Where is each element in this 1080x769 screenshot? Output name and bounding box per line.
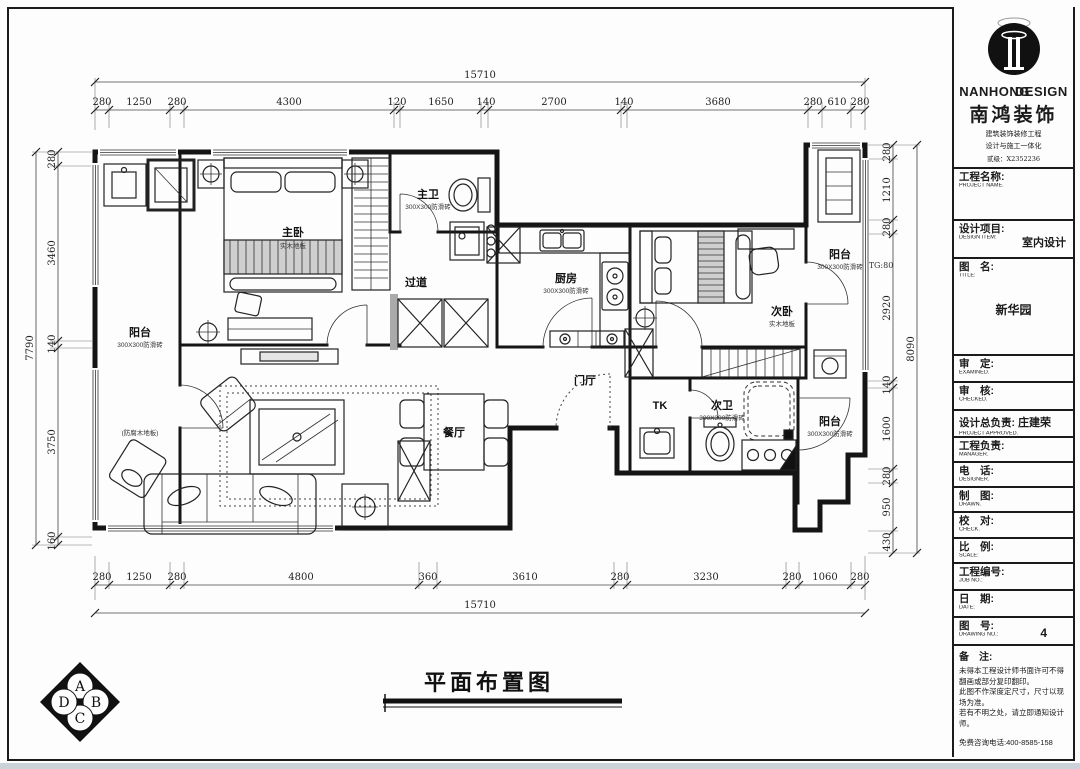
floor-plan: 15710 280 1250 280 4300 120 1650 140 270… [0, 0, 948, 769]
bed-master [224, 158, 342, 292]
field-value: 新华园 [959, 301, 1068, 318]
dim-label: 1250 [126, 97, 151, 108]
lamp-symbols [196, 163, 657, 520]
dim-label: 2920 [882, 295, 893, 320]
tg-annotation: TG:80 [869, 261, 894, 270]
compass-letter-a: A [74, 679, 86, 695]
room-label: 门厅 [574, 373, 596, 387]
room-spec: 300X300防滑砖 [543, 286, 589, 295]
field-drawing-title: 图 名: TITLE: 新华园 [954, 259, 1073, 356]
field-sublabel: DRAWN. [959, 502, 1059, 508]
remarks-line: 若有不明之处，请立即通知设计 [959, 708, 1068, 719]
armchair [198, 375, 257, 434]
field-sublabel: MANAGER. [959, 452, 1059, 458]
dim-label: 280 [167, 572, 186, 583]
dim-label: 2700 [541, 97, 566, 108]
balcony-washer [148, 160, 194, 210]
lounge-chair [108, 438, 168, 499]
brand-logo [984, 15, 1044, 79]
field-sublabel: DESIGNER. [959, 477, 1059, 483]
field-date: 日 期: DATE: [954, 591, 1073, 618]
remarks-line: 场为准。 [959, 698, 1068, 709]
dim-label: 1600 [882, 416, 893, 441]
dim-total-bottom: 15710 [464, 600, 496, 611]
field-sublabel: CHECK. [959, 527, 1059, 533]
compass: A B C D [40, 662, 120, 742]
dim-label: 140 [614, 97, 633, 108]
bathtub [744, 382, 794, 440]
field-label: 图 号: [959, 620, 1068, 632]
room-spec: 300X300防滑砖 [117, 340, 163, 349]
dim-label: 280 [782, 572, 801, 583]
dim-label: 280 [850, 97, 869, 108]
field-label: 比 例: [959, 541, 1068, 553]
wardrobe [352, 158, 390, 290]
remarks-line: 此图不作深度定尺寸，尺寸以现 [959, 687, 1068, 698]
field-chief-designer: 设计总负责:庄建荣 PROJECT APPROVED. [954, 411, 1073, 438]
room-label: 厨房 [555, 271, 577, 285]
dim-total-left: 7790 [25, 335, 36, 360]
brand-subline: 设计与施工一体化 [959, 141, 1068, 151]
stairs [702, 349, 800, 377]
bed-second [640, 231, 752, 303]
remarks-line: 师。 [959, 719, 1068, 730]
field-sublabel: JOB NO.: [959, 578, 1059, 584]
remarks-line: 翻画或部分复印翻印。 [959, 677, 1068, 688]
room-label: 阳台 [819, 414, 841, 428]
room-label: 次卫 [711, 398, 733, 412]
field-sublabel: DATE: [959, 605, 1059, 611]
room-spec: 实木地板 [769, 319, 796, 328]
field-sublabel: PROJECT NAME. [959, 183, 1059, 189]
field-project-name: 工程名称: PROJECT NAME. [954, 169, 1073, 221]
field-proofread: 校 对: CHECK. [954, 513, 1073, 539]
dim-label: 280 [92, 572, 111, 583]
dim-label: 3230 [693, 572, 718, 583]
stove [602, 262, 628, 310]
dim-label: 280 [803, 97, 822, 108]
room-label: TK [653, 400, 668, 412]
dim-total-right: 8090 [906, 336, 917, 361]
room-label: 阳台 [129, 325, 151, 339]
dim-label: 950 [882, 497, 893, 516]
title-block: NANHONGDESIGN 南鸿装饰 建筑装饰装修工程 设计与施工一体化 贰级：… [952, 7, 1073, 757]
dim-label: 3680 [705, 97, 730, 108]
field-label: 日 期: [959, 593, 1068, 605]
field-label: 审 核: [959, 385, 1068, 397]
field-label: 设计总负责: [959, 417, 1015, 429]
dim-label: 280 [882, 217, 893, 236]
field-label: 工程名称: [959, 171, 1068, 183]
field-value: 4 [1040, 626, 1047, 640]
compass-letter-c: C [75, 711, 86, 727]
dim-label: 140 [882, 375, 893, 394]
dim-label: 3610 [512, 572, 537, 583]
field-label: 图 名: [959, 261, 1068, 273]
dim-label: 280 [92, 97, 111, 108]
field-sublabel: PROJECT APPROVED. [959, 431, 1059, 437]
brand-license: 贰级：X2352236 [959, 153, 1068, 163]
field-checked: 审 核: CHECKED. [954, 383, 1073, 411]
field-phone: 电 话: DESIGNER. [954, 463, 1073, 488]
room-spec: 300X300防滑砖 [405, 202, 451, 211]
dim-label: 360 [418, 572, 437, 583]
room-label: 次卧 [771, 304, 793, 318]
field-drawn: 制 图: DRAWN. [954, 488, 1073, 513]
field-label: 审 定: [959, 358, 1068, 370]
dim-label: 140 [476, 97, 495, 108]
dim-label: 140 [47, 334, 58, 353]
page-edge-shadow [0, 763, 1080, 769]
remarks-section: 备 注: 未得本工程设计师书面许可不得 翻画或部分复印翻印。 此图不作深度定尺寸… [954, 646, 1073, 762]
utility-sink [640, 428, 674, 458]
brand-name-en: NANHONGDESIGN [959, 84, 1068, 99]
dim-label: 1060 [812, 572, 837, 583]
field-label: 校 对: [959, 515, 1068, 527]
toilet-master [449, 178, 490, 212]
room-spec: 300X300防滑砖 [817, 262, 863, 271]
compass-letter-d: D [58, 695, 69, 711]
brand-subline: 建筑装饰装修工程 [959, 129, 1068, 139]
room-spec: 实木地板 [280, 241, 307, 250]
dim-label: 1210 [882, 177, 893, 202]
dim-label: 120 [387, 97, 406, 108]
coffee-table [250, 400, 344, 474]
toilet-second [704, 418, 736, 461]
room-spec: 300X300防滑砖 [699, 413, 745, 422]
field-label: 电 话: [959, 465, 1068, 477]
dim-label: 3460 [47, 240, 58, 265]
room-label: 主卧 [282, 225, 304, 239]
field-label: 工程负责: [959, 440, 1068, 452]
shoe-cabinet [550, 331, 624, 347]
remarks-hotline: 免费咨询电话:400-8585-158 [959, 737, 1068, 748]
tv-cabinet [241, 349, 338, 364]
brand-name-cn: 南鸿装饰 [959, 100, 1068, 127]
field-sublabel: CHECKED. [959, 397, 1059, 403]
dim-label: 280 [610, 572, 629, 583]
field-label: 工程编号: [959, 566, 1068, 578]
room-label: 阳台 [829, 247, 851, 261]
dim-label: 280 [850, 572, 869, 583]
dim-label: 280 [882, 142, 893, 161]
dim-label: 1250 [126, 572, 151, 583]
field-sublabel: EXAMINED. [959, 370, 1059, 376]
compass-letter-b: B [91, 695, 101, 711]
field-manager: 工程负责: MANAGER. [954, 438, 1073, 463]
kitchen-counter [499, 227, 630, 347]
remarks-line: 未得本工程设计师书面许可不得 [959, 666, 1068, 677]
brand-section: NANHONGDESIGN 南鸿装饰 建筑装饰装修工程 设计与施工一体化 贰级：… [954, 7, 1073, 169]
field-sublabel: TITLE: [959, 273, 1059, 279]
furniture [104, 150, 860, 534]
room-label: 过道 [405, 275, 427, 289]
kitchen-sink [540, 230, 584, 252]
dim-total-top: 15710 [464, 70, 496, 81]
vanity-desk [228, 292, 312, 340]
field-sublabel: SCALE: [959, 553, 1059, 559]
field-label: 制 图: [959, 490, 1068, 502]
balcony-cabinet [818, 150, 860, 222]
field-value: 庄建荣 [1018, 417, 1051, 429]
washer [814, 350, 846, 378]
field-examined: 审 定: EXAMINED. [954, 356, 1073, 383]
dim-label: 3750 [47, 429, 58, 454]
room-spec: 300X300防滑砖 [807, 429, 853, 438]
field-design-item: 设计项目: DESIGN ITEM: 室内设计 [954, 221, 1073, 259]
room-spec: (防腐木地板) [122, 428, 159, 437]
dim-label: 4300 [276, 97, 301, 108]
dim-label: 1650 [428, 97, 453, 108]
room-label: 主卫 [417, 187, 439, 201]
dim-label: 430 [882, 532, 893, 551]
washstand [742, 440, 796, 470]
laundry-sink [104, 164, 146, 206]
field-job-no: 工程编号: JOB NO.: [954, 564, 1073, 591]
drawing-caption: 平面布置图 [383, 670, 622, 712]
field-scale: 比 例: SCALE: [954, 539, 1073, 564]
brand-name-part2: DESIGN [1015, 84, 1068, 99]
caption-text: 平面布置图 [424, 670, 554, 695]
dim-label: 4800 [288, 572, 313, 583]
room-label: 餐厅 [442, 425, 465, 439]
dim-label: 280 [47, 149, 58, 168]
dim-label: 160 [47, 531, 58, 550]
dim-label: 610 [827, 97, 846, 108]
field-drawing-no: 图 号: DRAWING NO.: 4 [954, 618, 1073, 646]
field-value: 室内设计 [1022, 234, 1066, 250]
dim-label: 280 [167, 97, 186, 108]
remarks-label: 备 注: [959, 648, 1068, 663]
dim-label: 280 [882, 466, 893, 485]
drawing-sheet: 15710 280 1250 280 4300 120 1650 140 270… [0, 0, 1080, 769]
